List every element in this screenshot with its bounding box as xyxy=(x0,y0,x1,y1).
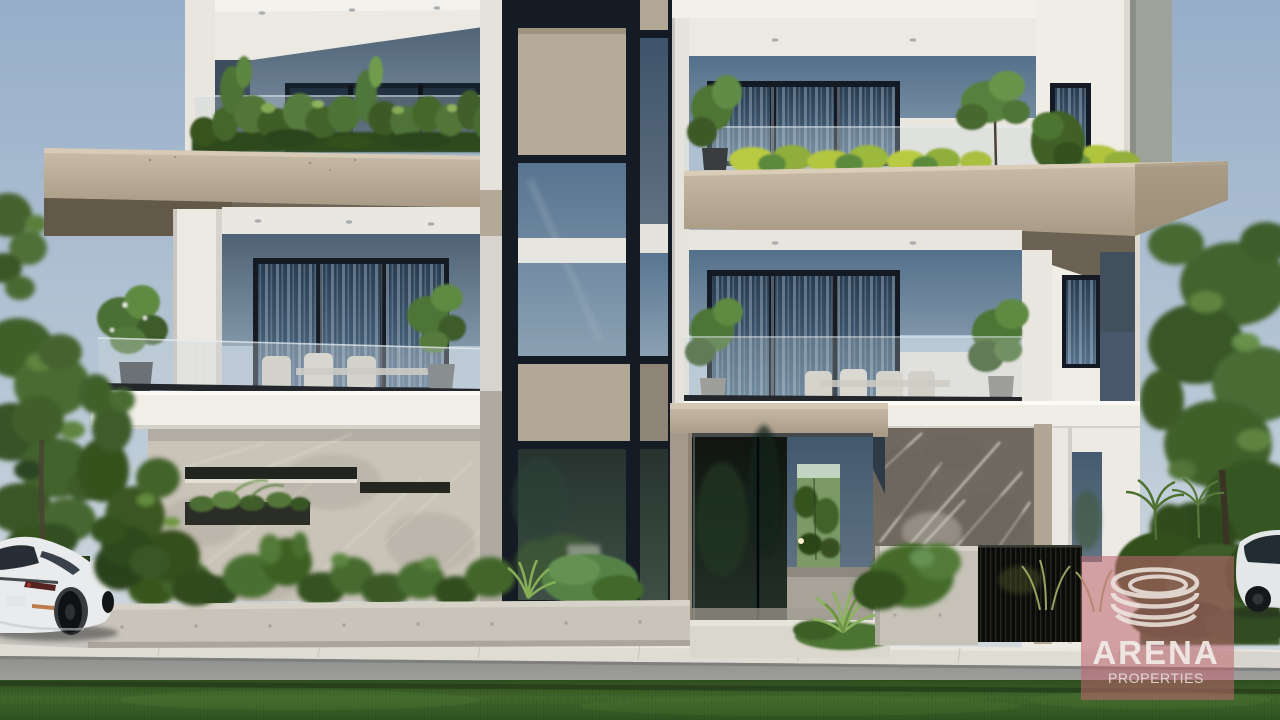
svg-text:PROPERTIES: PROPERTIES xyxy=(1108,670,1204,686)
svg-text:ARENA: ARENA xyxy=(1092,634,1219,671)
